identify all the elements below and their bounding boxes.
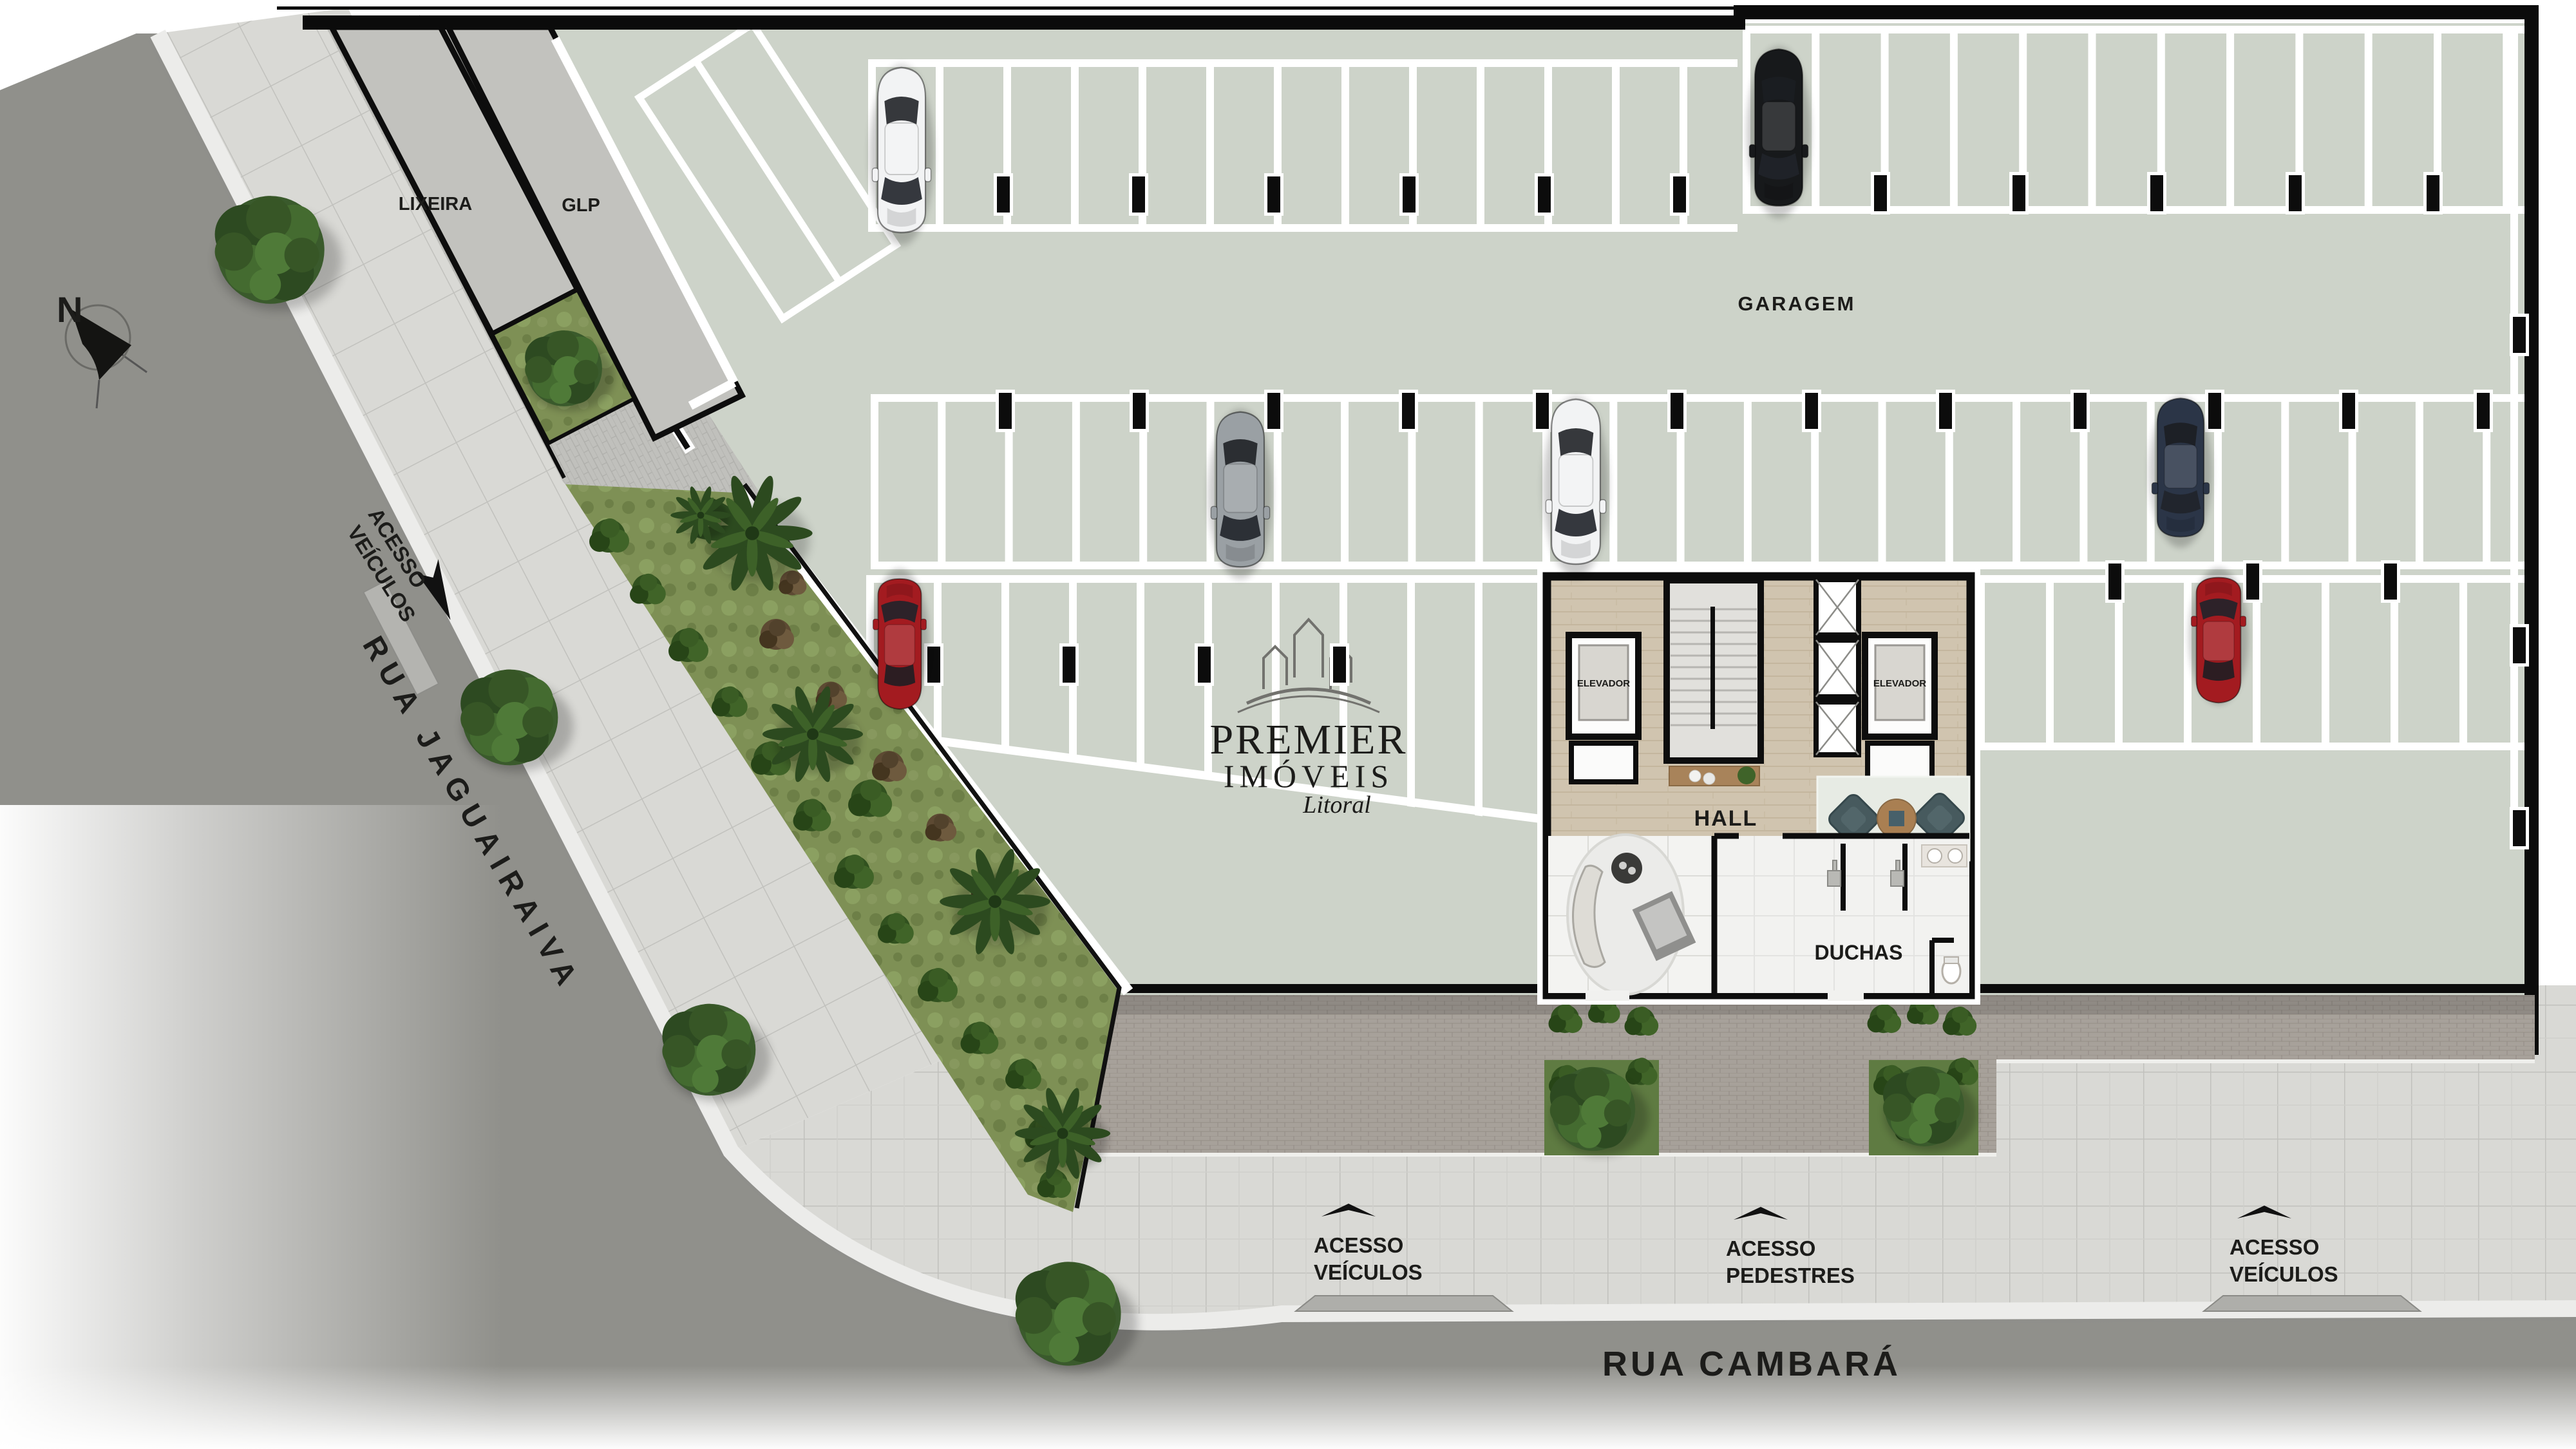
elevator-left: ELEVADOR: [1569, 635, 1638, 782]
svg-text:ACESSO: ACESSO: [2230, 1235, 2319, 1259]
compass-n-label: N: [57, 289, 82, 330]
site-plan-garage-level: GARAGEM PREMIER IMÓVEIS Litoral: [0, 0, 2576, 1449]
hall-console: [1669, 766, 1759, 786]
logo-text-imoveis: IMÓVEIS: [1224, 758, 1394, 794]
elevator-right-label: ELEVADOR: [1873, 678, 1926, 689]
car-red-lower-left: [871, 569, 929, 711]
ramp-vehicles-right: [2204, 1296, 2420, 1311]
svg-text:VEÍCULOS: VEÍCULOS: [1314, 1260, 1423, 1284]
service-shafts: [1816, 580, 1859, 755]
logo-text-litoral: Litoral: [1302, 791, 1371, 819]
plan-canvas: GARAGEM PREMIER IMÓVEIS Litoral: [0, 0, 2576, 1449]
glp-label: GLP: [562, 195, 600, 216]
corner-fade: [0, 805, 502, 1449]
street-name-bottom: RUA CAMBARÁ: [1602, 1345, 1901, 1383]
car-red-lower-right: [2189, 568, 2249, 705]
garage-label: GARAGEM: [1738, 292, 1856, 315]
door-gap-showers: [1828, 990, 1864, 1001]
svg-text:ACESSO: ACESSO: [1314, 1233, 1403, 1257]
elevator-right: ELEVADOR: [1865, 635, 1935, 782]
svg-text:VEÍCULOS: VEÍCULOS: [2230, 1262, 2338, 1286]
showers-label: DUCHAS: [1815, 941, 1903, 964]
parking-row-top-right: [1743, 26, 2535, 214]
bottom-fade: [0, 1365, 2576, 1449]
car-white-middle: [1543, 397, 1609, 577]
car-navy-middle: [2149, 396, 2211, 547]
car-black-top: [1747, 47, 1811, 218]
wall-bottom-right: [1978, 984, 2535, 993]
showers-room: DUCHAS: [1714, 836, 1969, 993]
elevator-left-label: ELEVADOR: [1577, 678, 1630, 689]
door-gap-hall: [1586, 990, 1629, 1001]
stairwell: [1667, 580, 1761, 761]
svg-text:ACESSO: ACESSO: [1726, 1236, 1815, 1260]
ramp-vehicles-left: [1296, 1296, 1512, 1311]
logo-text-premier: PREMIER: [1209, 716, 1407, 763]
wall-top-right: [1739, 5, 2539, 19]
hall-reception: [1548, 835, 1714, 994]
parking-row-middle: [871, 394, 2535, 569]
svg-text:PEDESTRES: PEDESTRES: [1726, 1264, 1855, 1287]
wall-top-outer-line: [277, 6, 1745, 10]
core: ELEVADOR ELEVADOR HALL: [1543, 573, 1975, 1001]
wall-bottom-left: [1126, 984, 1551, 993]
hall-label: HALL: [1694, 806, 1758, 831]
lixeira-label: LIXEIRA: [399, 194, 472, 214]
wall-top-left: [303, 15, 1743, 30]
car-white-top: [869, 65, 934, 245]
car-gray-middle: [1208, 410, 1273, 579]
right-edge-line: [2510, 28, 2518, 827]
wall-right: [2524, 5, 2539, 1055]
wall-top-step: [1734, 5, 1745, 30]
